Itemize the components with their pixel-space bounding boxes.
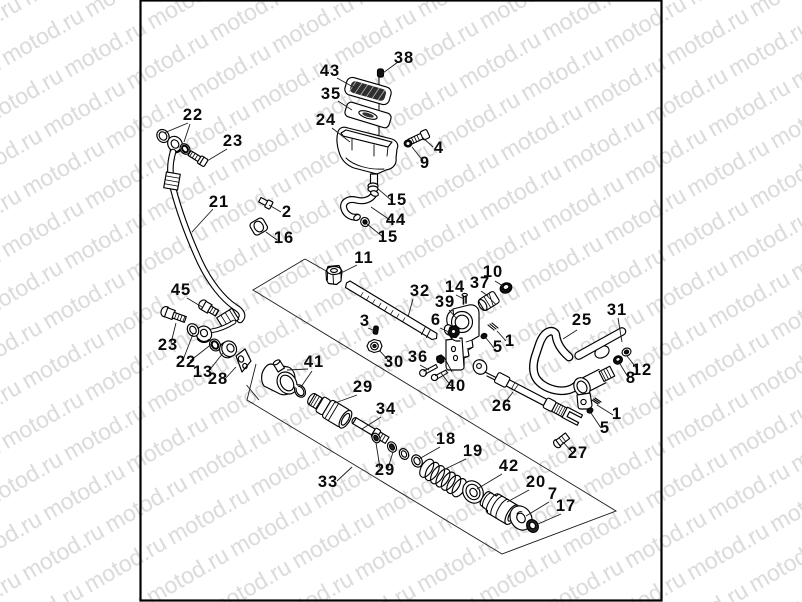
svg-text:1: 1 [505,332,515,350]
svg-text:2: 2 [282,203,292,221]
svg-text:35: 35 [321,85,341,103]
svg-text:26: 26 [492,397,512,415]
svg-text:9: 9 [420,154,430,172]
svg-text:41: 41 [304,353,324,371]
svg-text:15: 15 [387,191,407,209]
svg-text:32: 32 [410,282,430,300]
svg-text:45: 45 [171,281,191,299]
svg-text:40: 40 [446,377,466,395]
svg-text:5: 5 [600,419,610,437]
svg-text:23: 23 [223,132,243,150]
svg-text:23: 23 [158,336,178,354]
svg-text:34: 34 [376,400,396,418]
svg-text:5: 5 [493,338,503,356]
svg-text:42: 42 [499,457,519,475]
svg-text:21: 21 [209,193,229,211]
svg-text:4: 4 [434,139,444,157]
svg-text:6: 6 [431,311,441,329]
svg-text:38: 38 [394,49,414,67]
svg-text:44: 44 [386,211,406,229]
svg-text:30: 30 [384,353,404,371]
svg-text:27: 27 [568,444,588,462]
svg-text:16: 16 [274,229,294,247]
svg-text:43: 43 [320,62,340,80]
svg-text:36: 36 [408,348,428,366]
svg-text:15: 15 [378,228,398,246]
svg-text:1: 1 [612,405,622,423]
svg-text:31: 31 [607,301,627,319]
svg-text:3: 3 [360,312,370,330]
svg-text:39: 39 [435,293,455,311]
svg-text:18: 18 [436,430,456,448]
svg-text:29: 29 [375,461,395,479]
svg-text:29: 29 [353,378,373,396]
svg-text:28: 28 [208,370,228,388]
svg-text:20: 20 [526,473,546,491]
svg-text:25: 25 [572,311,592,329]
svg-text:33: 33 [318,473,338,491]
svg-text:24: 24 [316,111,336,129]
svg-text:11: 11 [354,249,373,267]
svg-text:8: 8 [626,369,636,387]
svg-text:10: 10 [483,263,503,281]
svg-text:22: 22 [183,106,203,124]
svg-text:19: 19 [463,442,483,460]
svg-text:17: 17 [556,497,576,515]
